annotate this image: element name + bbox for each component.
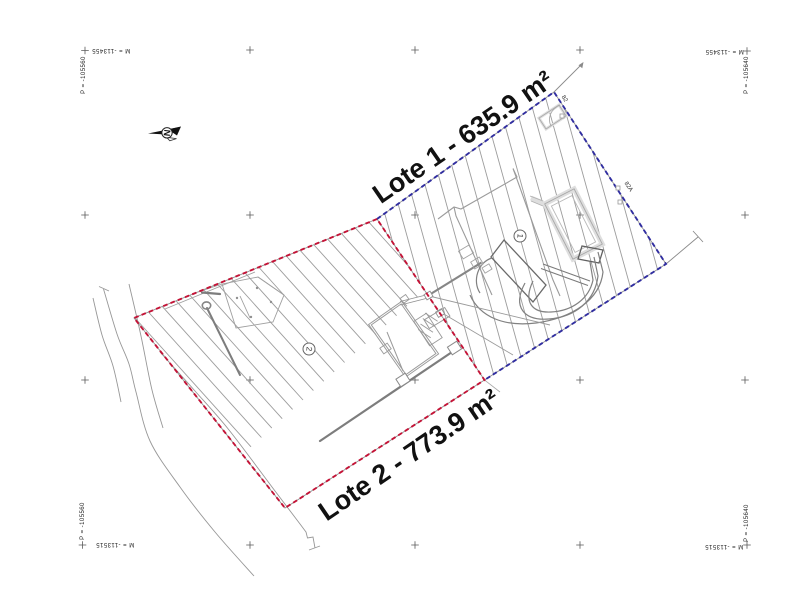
svg-text:M = -113455: M = -113455 — [92, 47, 131, 53]
svg-text:M = -113515: M = -113515 — [705, 543, 744, 549]
svg-text:M = -113455: M = -113455 — [705, 48, 744, 54]
svg-text:P = -105560: P = -105560 — [80, 502, 86, 540]
svg-text:M = -113515: M = -113515 — [96, 541, 135, 547]
svg-text:P = -105560: P = -105560 — [81, 56, 87, 94]
svg-text:P = -105640: P = -105640 — [744, 56, 750, 94]
svg-text:P = -105640: P = -105640 — [744, 504, 750, 542]
svg-text:N: N — [162, 129, 173, 137]
